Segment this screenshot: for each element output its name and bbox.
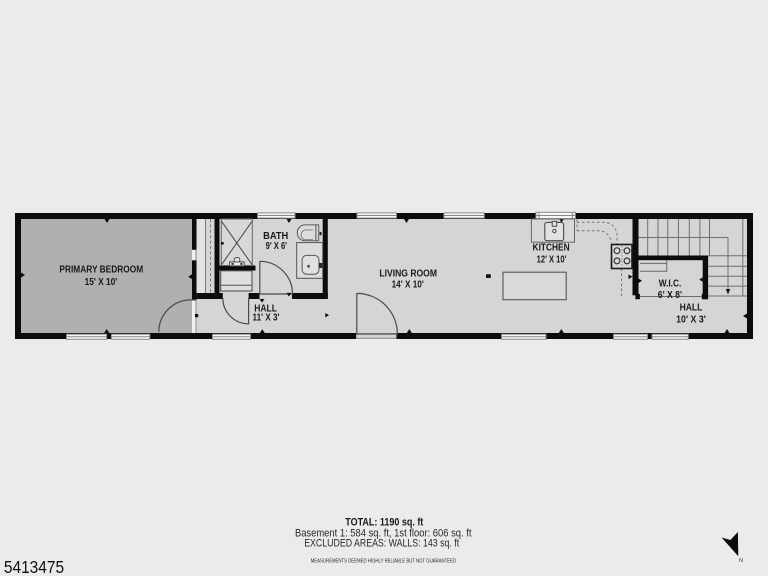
- svg-text:12' X 10': 12' X 10': [537, 255, 567, 266]
- svg-text:KITCHEN: KITCHEN: [533, 243, 570, 254]
- svg-text:15' X 10': 15' X 10': [85, 277, 118, 288]
- svg-text:14' X 10': 14' X 10': [392, 280, 424, 291]
- svg-text:LIVING ROOM: LIVING ROOM: [379, 269, 437, 280]
- svg-text:PRIMARY BEDROOM: PRIMARY BEDROOM: [59, 265, 143, 276]
- svg-text:MEASUREMENTS DEEMED HIGHLY REL: MEASUREMENTS DEEMED HIGHLY RELIABLE BUT …: [311, 558, 456, 564]
- svg-text:6' X 8': 6' X 8': [658, 290, 682, 301]
- svg-text:10' X 3': 10' X 3': [676, 315, 706, 326]
- svg-text:W.I.C.: W.I.C.: [659, 278, 682, 289]
- svg-text:HALL: HALL: [680, 303, 703, 314]
- svg-text:EXCLUDED AREAS: WALLS: 143 sq.: EXCLUDED AREAS: WALLS: 143 sq. ft: [304, 537, 459, 549]
- svg-text:N: N: [739, 558, 743, 564]
- svg-text:9' X 6': 9' X 6': [266, 241, 287, 252]
- svg-text:11' X 3': 11' X 3': [253, 313, 280, 324]
- svg-text:5413475: 5413475: [4, 557, 64, 576]
